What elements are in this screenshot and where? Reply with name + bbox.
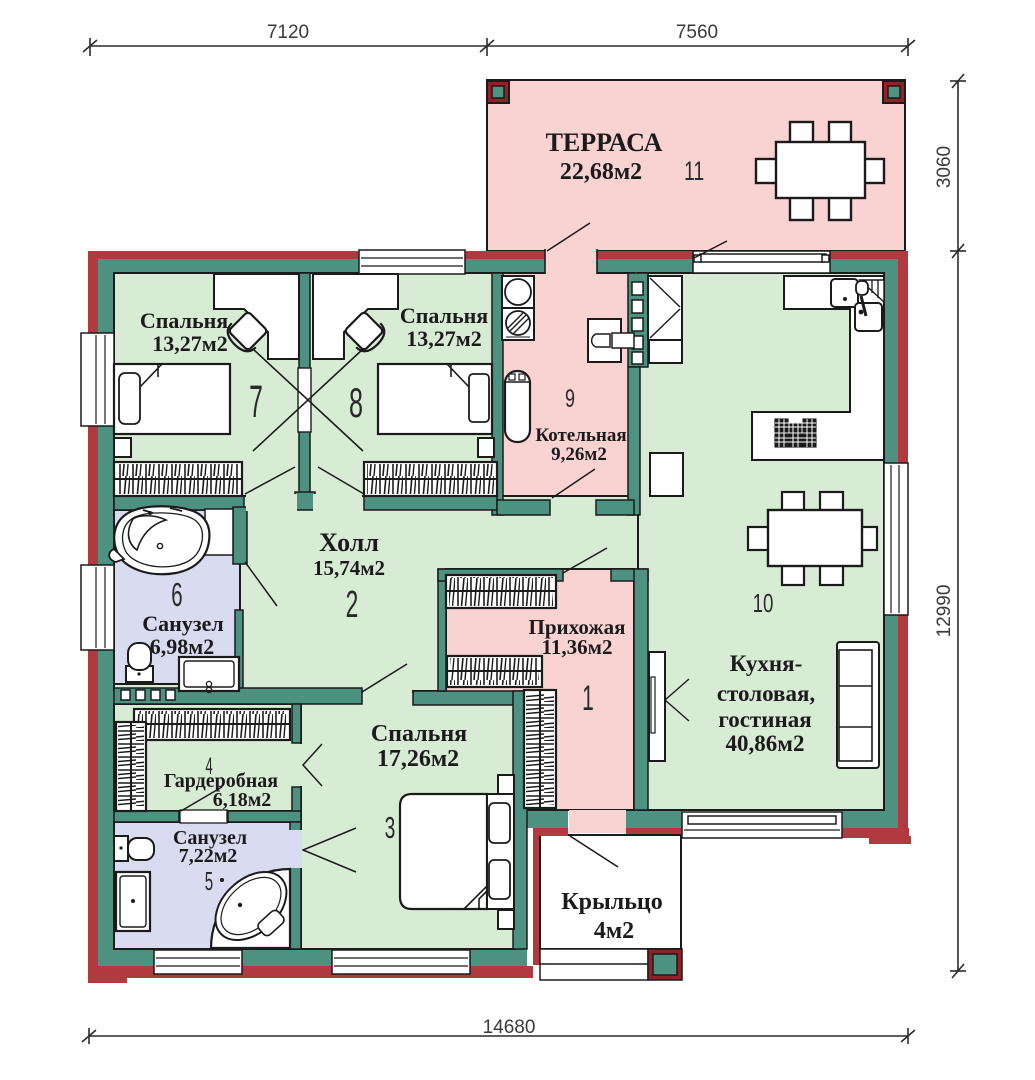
- svg-text:3: 3: [385, 812, 396, 846]
- svg-text:11,36м2: 11,36м2: [542, 635, 613, 659]
- svg-text:Спальня: Спальня: [400, 303, 488, 328]
- svg-text:7,22м2: 7,22м2: [179, 845, 238, 867]
- svg-text:13,27м2: 13,27м2: [152, 331, 228, 356]
- svg-text:Санузел: Санузел: [142, 611, 224, 636]
- svg-text:7: 7: [249, 376, 263, 427]
- svg-text:22,68м2: 22,68м2: [560, 159, 642, 185]
- svg-text:9: 9: [565, 384, 575, 413]
- svg-text:11: 11: [684, 156, 704, 186]
- svg-text:4м2: 4м2: [594, 918, 634, 944]
- svg-text:столовая,: столовая,: [717, 681, 815, 706]
- svg-text:6: 6: [171, 576, 182, 613]
- svg-text:Кухня-: Кухня-: [730, 651, 802, 676]
- svg-text:Спальня: Спальня: [140, 308, 228, 333]
- svg-text:ТЕРРАСА: ТЕРРАСА: [546, 128, 663, 157]
- svg-text:9,26м2: 9,26м2: [551, 444, 607, 465]
- svg-text:7560: 7560: [676, 22, 718, 43]
- svg-text:8: 8: [349, 381, 363, 427]
- svg-text:6,98м2: 6,98м2: [150, 634, 215, 659]
- svg-text:1: 1: [582, 680, 594, 719]
- svg-text:Котельная: Котельная: [535, 425, 626, 446]
- svg-text:гостиная: гостиная: [718, 707, 811, 732]
- svg-text:10: 10: [753, 588, 774, 618]
- svg-text:13,27м2: 13,27м2: [406, 326, 482, 351]
- svg-text:Холл: Холл: [319, 528, 379, 557]
- svg-text:2: 2: [346, 583, 359, 625]
- svg-text:Спальня: Спальня: [371, 721, 467, 747]
- svg-text:14680: 14680: [483, 1017, 536, 1038]
- svg-text:7120: 7120: [267, 22, 309, 43]
- svg-text:4: 4: [205, 753, 212, 780]
- svg-text:3060: 3060: [934, 146, 955, 188]
- svg-text:15,74м2: 15,74м2: [313, 556, 385, 580]
- svg-text:40,86м2: 40,86м2: [726, 731, 805, 756]
- svg-text:5: 5: [205, 867, 213, 896]
- svg-text:12990: 12990: [934, 585, 955, 638]
- svg-text:Крыльцо: Крыльцо: [561, 889, 662, 915]
- svg-text:17,26м2: 17,26м2: [377, 746, 459, 772]
- svg-text:6,18м2: 6,18м2: [213, 789, 272, 811]
